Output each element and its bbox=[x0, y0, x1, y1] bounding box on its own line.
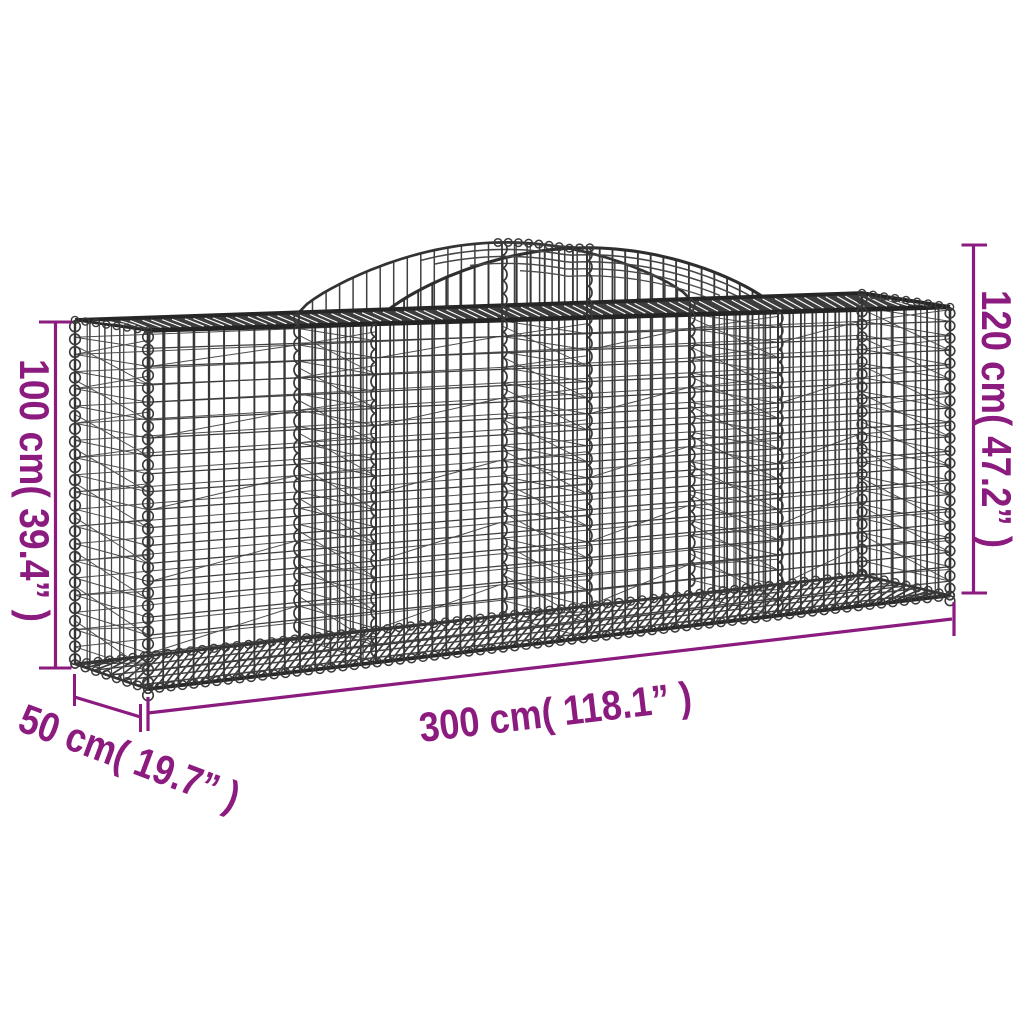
svg-text:100 cm( 39.4” ): 100 cm( 39.4” ) bbox=[11, 359, 58, 622]
svg-text:120 cm( 47.2” ): 120 cm( 47.2” ) bbox=[973, 290, 1020, 548]
svg-text:300 cm( 118.1” ): 300 cm( 118.1” ) bbox=[417, 672, 695, 751]
